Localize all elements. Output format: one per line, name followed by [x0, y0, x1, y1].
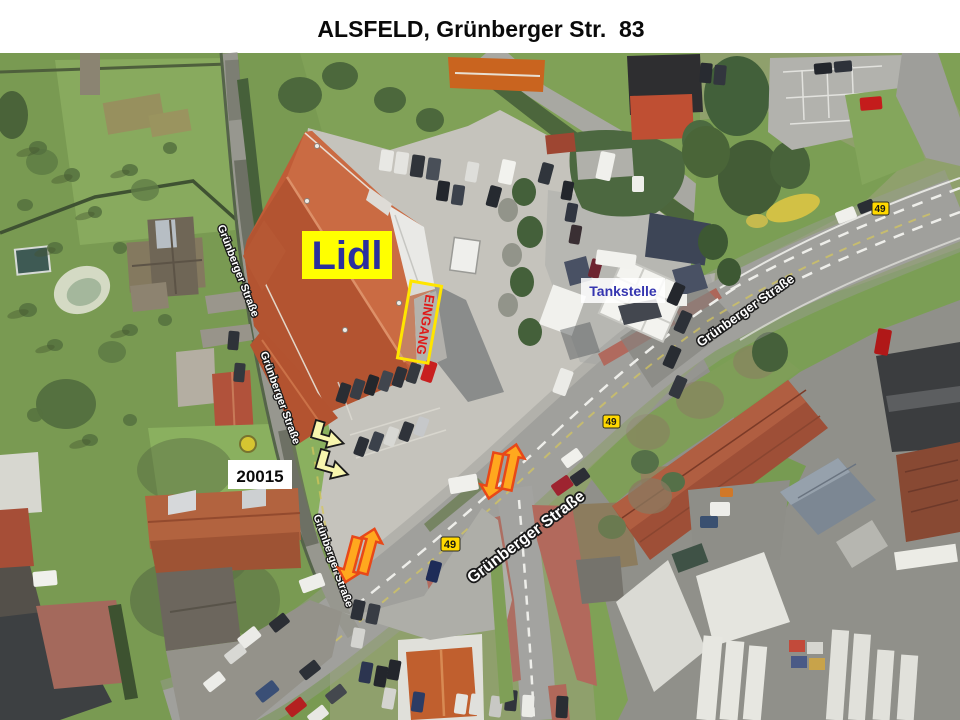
svg-text:20015: 20015 — [236, 467, 283, 486]
svg-text:Lidl: Lidl — [311, 234, 382, 278]
svg-text:ALSFELD, Grünberger Str. 83: ALSFELD, Grünberger Str. 83 — [317, 16, 644, 42]
svg-text:Tankstelle: Tankstelle — [589, 283, 657, 299]
svg-text:49: 49 — [444, 539, 456, 551]
svg-text:49: 49 — [874, 204, 886, 215]
svg-text:49: 49 — [605, 417, 617, 428]
